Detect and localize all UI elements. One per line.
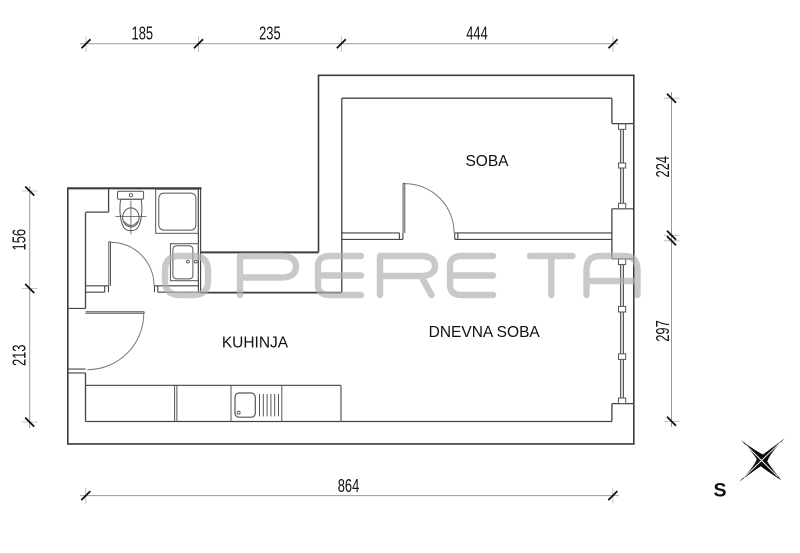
svg-text:224: 224 <box>652 156 673 178</box>
svg-text:SOBA: SOBA <box>465 153 509 170</box>
svg-text:KUHINJA: KUHINJA <box>222 334 289 351</box>
svg-text:185: 185 <box>132 22 154 43</box>
svg-text:235: 235 <box>259 22 281 43</box>
svg-text:DNEVNA SOBA: DNEVNA SOBA <box>429 324 541 341</box>
svg-text:S: S <box>714 479 727 501</box>
svg-text:444: 444 <box>466 22 488 43</box>
svg-text:213: 213 <box>9 345 30 367</box>
svg-text:156: 156 <box>9 229 30 251</box>
svg-text:864: 864 <box>338 475 360 496</box>
svg-text:297: 297 <box>652 320 673 342</box>
